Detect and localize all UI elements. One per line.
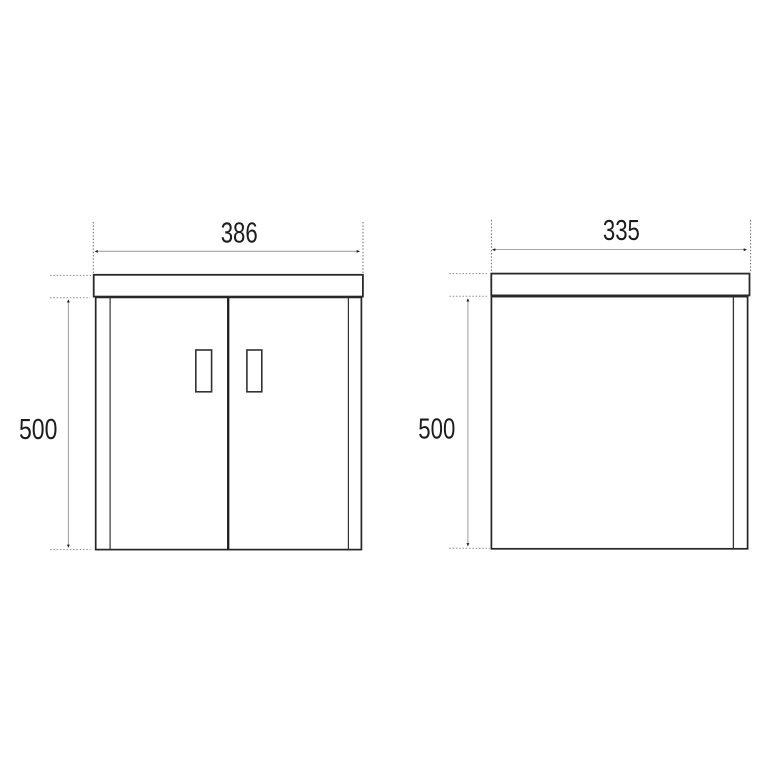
svg-text:386: 386 — [221, 218, 258, 250]
svg-text:335: 335 — [603, 215, 640, 247]
svg-text:500: 500 — [19, 414, 57, 446]
svg-text:500: 500 — [418, 413, 455, 445]
